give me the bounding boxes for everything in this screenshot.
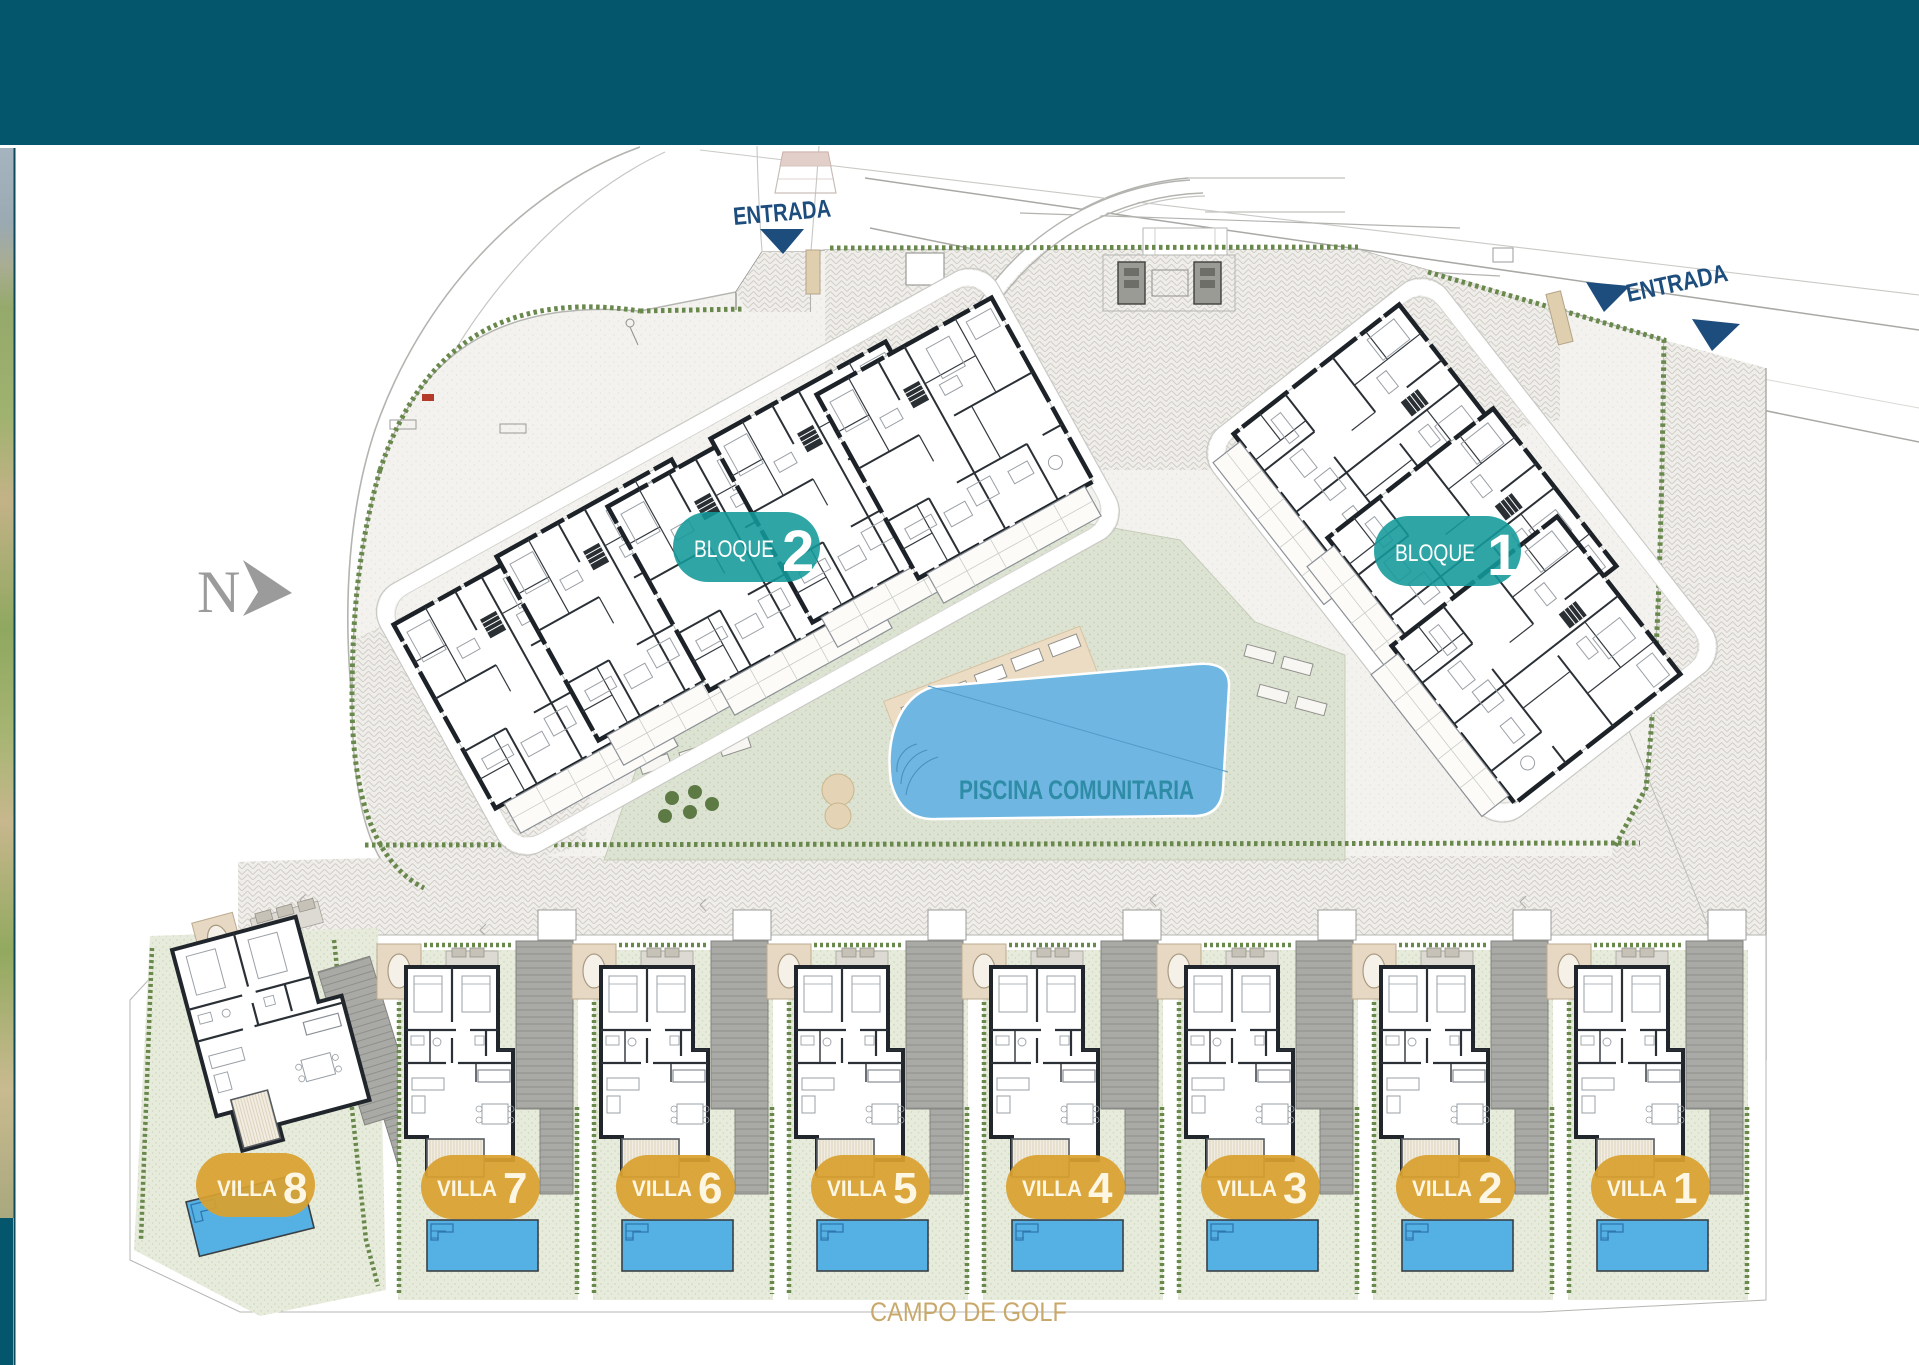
svg-text:PISCINA COMUNITARIA: PISCINA COMUNITARIA <box>959 775 1194 805</box>
svg-text:VILLA: VILLA <box>1412 1176 1472 1201</box>
svg-text:VILLA: VILLA <box>632 1176 692 1201</box>
svg-text:VILLA: VILLA <box>1022 1176 1082 1201</box>
svg-text:6: 6 <box>698 1164 722 1213</box>
svg-text:VILLA: VILLA <box>1217 1176 1277 1201</box>
svg-text:1: 1 <box>1487 523 1519 588</box>
svg-text:VILLA: VILLA <box>1607 1176 1667 1201</box>
svg-text:VILLA: VILLA <box>437 1176 497 1201</box>
svg-text:VILLA: VILLA <box>217 1176 277 1201</box>
svg-text:1: 1 <box>1673 1164 1697 1213</box>
svg-text:BLOQUE: BLOQUE <box>694 536 774 563</box>
svg-text:CAMPO DE GOLF: CAMPO DE GOLF <box>870 1297 1067 1327</box>
svg-text:N: N <box>197 559 240 625</box>
svg-text:2: 2 <box>1478 1164 1502 1213</box>
svg-text:2: 2 <box>782 519 814 584</box>
svg-text:VILLA: VILLA <box>827 1176 887 1201</box>
svg-text:5: 5 <box>893 1164 917 1213</box>
svg-text:3: 3 <box>1283 1164 1307 1213</box>
svg-text:8: 8 <box>283 1164 307 1213</box>
svg-text:7: 7 <box>503 1164 527 1213</box>
svg-text:BLOQUE: BLOQUE <box>1395 540 1475 567</box>
svg-text:4: 4 <box>1088 1164 1113 1213</box>
